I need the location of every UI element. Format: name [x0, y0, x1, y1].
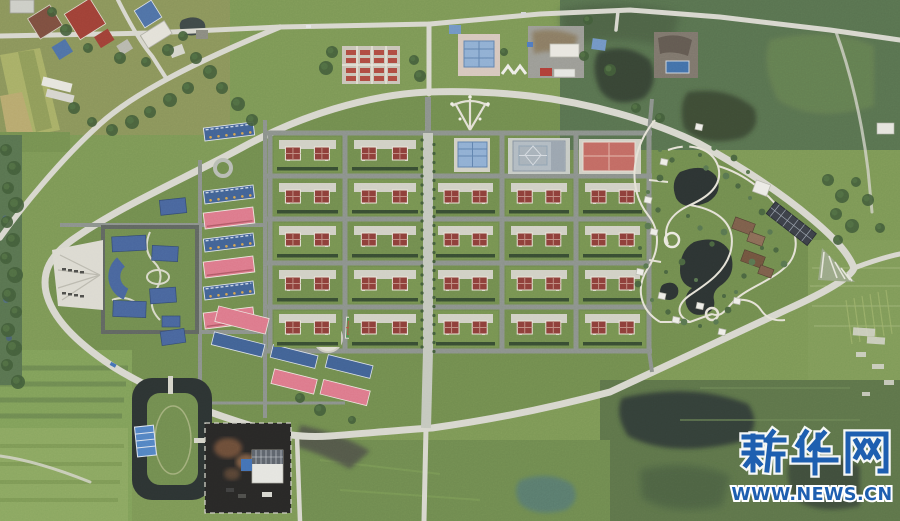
watermark-url: WWW.NEWS.CN [731, 485, 892, 505]
aerial-photo: WWW.NEWS.CN 新华网 [0, 0, 900, 521]
